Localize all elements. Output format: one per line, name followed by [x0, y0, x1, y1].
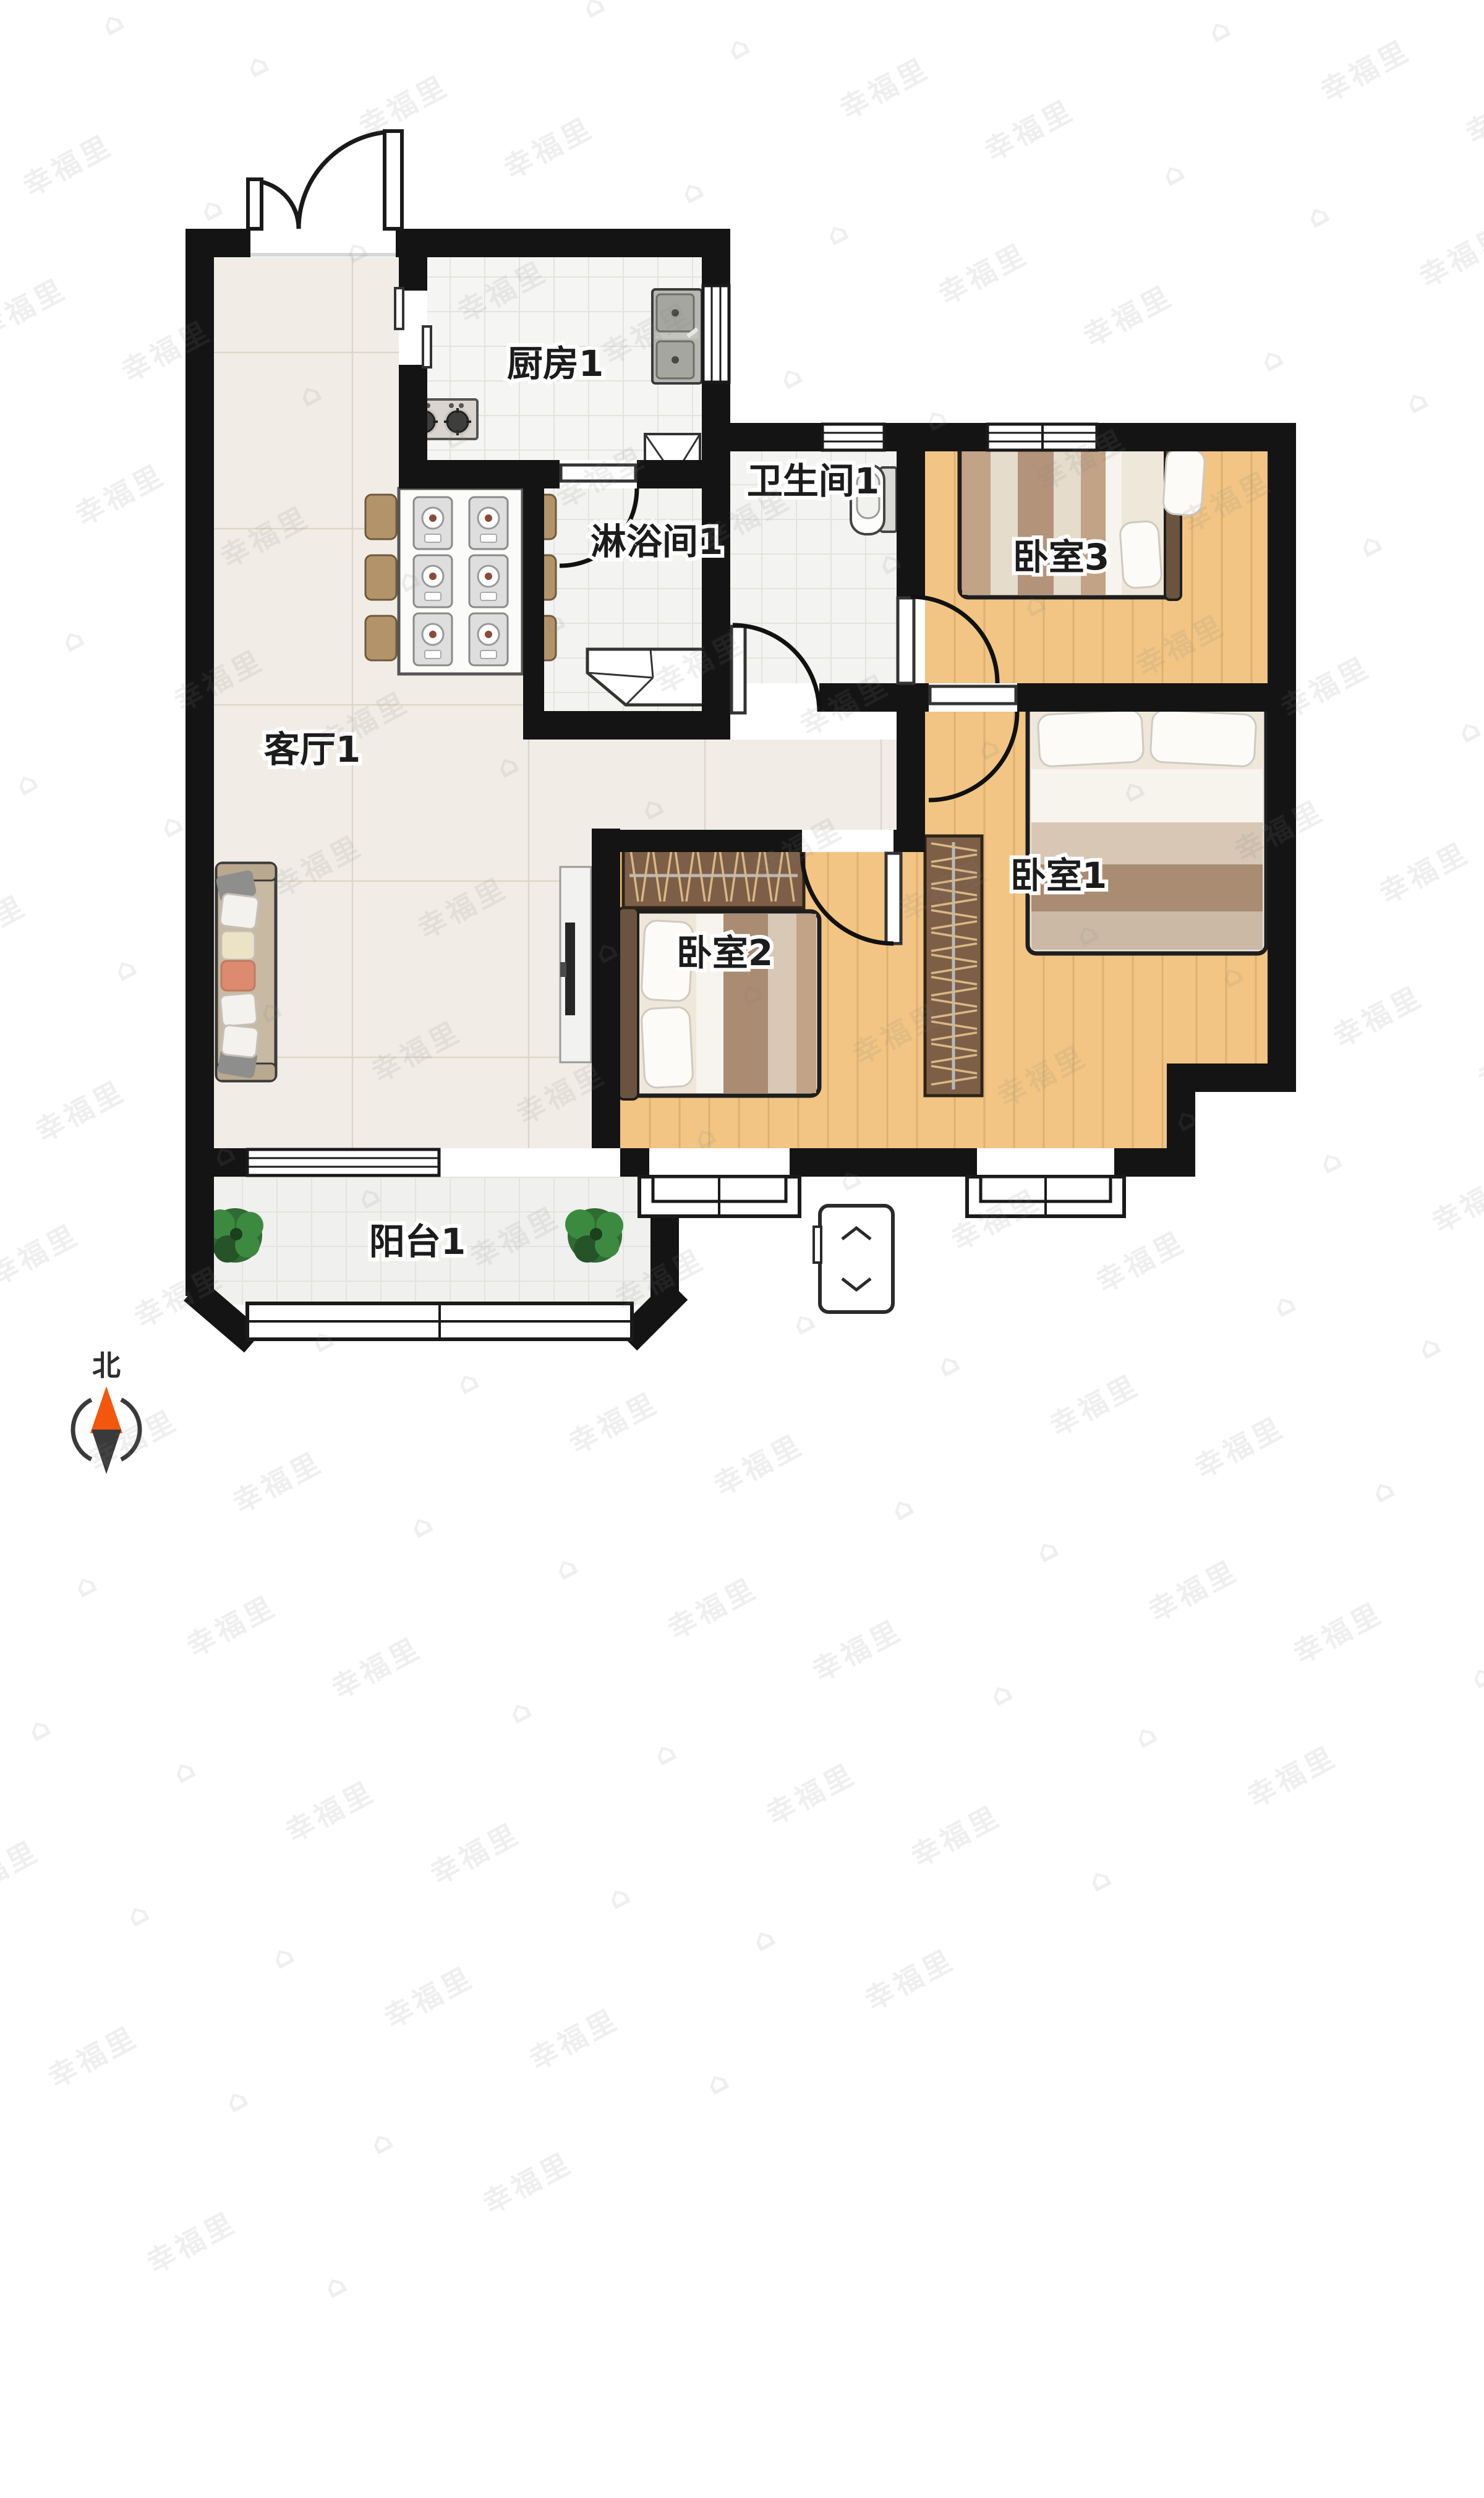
- watermark-text: 幸福里: [111, 1529, 352, 1723]
- bedroom1-label: 卧室1: [1010, 855, 1107, 897]
- watermark-text: 幸福里: [0, 1588, 16, 1783]
- watermark-text: 幸福里: [737, 1553, 978, 1747]
- watermark-house-icon: ⌂: [117, 2001, 358, 2196]
- bedroom2-wardrobe-icon: [623, 843, 804, 908]
- watermark-house-icon: ⌂: [599, 1984, 839, 2178]
- watermark-text: 幸福里: [592, 1511, 833, 1705]
- compass-icon: 北: [73, 1349, 140, 1475]
- balcony-railing-window: [247, 1303, 632, 1339]
- balcony-label: 阳台1: [369, 1221, 466, 1263]
- watermark-text: 幸福里: [1073, 1494, 1314, 1688]
- watermark-house-icon: ⌂: [448, 1469, 688, 1663]
- watermark-house-icon: ⌂: [1027, 1637, 1268, 1831]
- watermark-house-icon: ⌂: [0, 1487, 207, 1681]
- watermark-house-icon: ⌂: [401, 1613, 642, 1807]
- kitchen-window: [703, 286, 729, 382]
- floor-plan-svg: 厨房1 卫生间1 淋浴间1 卧室3 客厅1 卧室1 卧室2 阳台1 北: [0, 0, 1484, 1484]
- watermark-text: 幸福里: [691, 1697, 932, 1891]
- bathroom-label: 卫生间1: [747, 460, 879, 502]
- kitchen-sliding-door-icon: [395, 288, 431, 367]
- bedroom1-bay-window: [967, 1149, 1124, 1216]
- watermark-house-icon: ⌂: [164, 1858, 404, 2052]
- watermark-text: 幸福里: [309, 1900, 549, 2094]
- watermark-text: 幸福里: [1218, 1536, 1459, 1730]
- floor-plan-canvas: 厨房1 卫生间1 淋浴间1 卧室3 客厅1 卧室1 卧室2 阳台1 北 幸福里⌂…: [0, 0, 1484, 1484]
- watermark-text: 幸福里: [407, 2086, 648, 2280]
- watermark-house-icon: ⌂: [546, 1655, 787, 1849]
- kitchen-sink-icon: [652, 289, 702, 383]
- kitchen-label: 厨房1: [507, 343, 603, 385]
- living-label: 客厅1: [264, 728, 360, 770]
- watermark-text: 幸福里: [836, 1739, 1077, 1933]
- bedroom2-label: 卧室2: [676, 932, 773, 974]
- watermark-text: 幸福里: [72, 2146, 312, 2340]
- bedroom3-window: [987, 424, 1097, 450]
- watermark-house-icon: ⌂: [1363, 1578, 1484, 1772]
- watermark-house-icon: ⌂: [0, 1631, 161, 1825]
- watermark-text: 幸福里: [1172, 1679, 1412, 1873]
- living-room-window: [247, 1149, 439, 1175]
- watermark-house-icon: ⌂: [981, 1781, 1221, 1975]
- watermark-text: 幸福里: [790, 1883, 1030, 2077]
- watermark-house-icon: ⌂: [500, 1799, 741, 1993]
- entry-door-icon: [248, 131, 402, 255]
- bedroom1-wardrobe-icon: [925, 836, 982, 1096]
- watermark-text: 幸福里: [0, 1774, 114, 1968]
- watermark-house-icon: ⌂: [216, 2188, 457, 2382]
- exterior-notch: [1195, 1092, 1296, 1177]
- watermark-text: 幸福里: [0, 1959, 213, 2154]
- watermark-text: 幸福里: [454, 1942, 694, 2136]
- shower-label: 淋浴间1: [591, 521, 723, 563]
- bedroom3-label: 卧室3: [1013, 536, 1109, 578]
- watermark-house-icon: ⌂: [66, 1673, 306, 1867]
- watermark-text: 幸福里: [210, 1715, 451, 1909]
- watermark-house-icon: ⌂: [882, 1595, 1123, 1789]
- watermark-text: 幸福里: [257, 1571, 497, 1765]
- watermark-house-icon: ⌂: [19, 1816, 260, 2010]
- compass-north-label: 北: [92, 1349, 121, 1383]
- hallway-floor: [399, 740, 897, 830]
- compass-north-needle: [90, 1386, 122, 1433]
- watermark-text: 幸福里: [355, 1757, 595, 1951]
- bathroom-window: [822, 424, 884, 450]
- ac-unit-icon: [814, 1206, 893, 1312]
- bedroom2-bay-window: [639, 1149, 800, 1216]
- watermark-house-icon: ⌂: [263, 2044, 503, 2238]
- bedroom1-bed-icon: [1025, 688, 1269, 953]
- tv-icon: [560, 867, 591, 1062]
- watermark-house-icon: ⌂: [645, 1841, 885, 2035]
- compass-south-needle: [92, 1430, 121, 1474]
- sofa-icon: [215, 863, 276, 1081]
